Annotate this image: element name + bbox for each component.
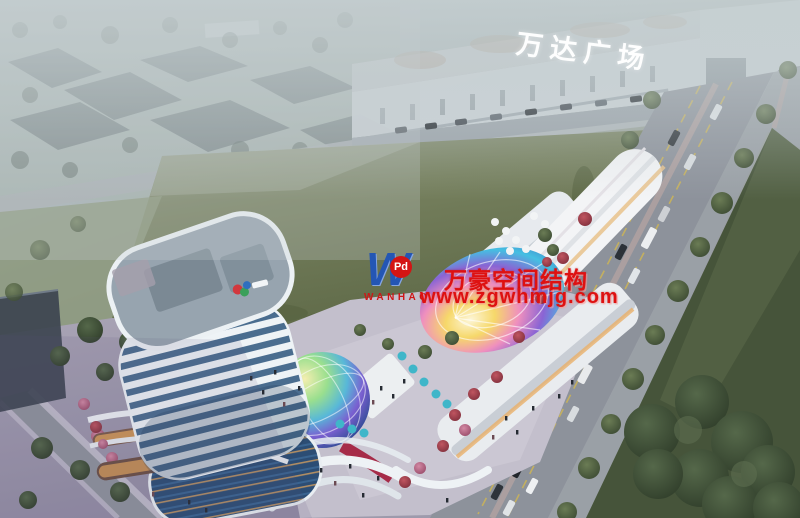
watermark-logo-badge: Pd xyxy=(390,256,412,278)
watermark-url: www.zgwhmjg.com xyxy=(420,286,619,309)
aerial-rendering-scene: 万达广场 W Pd WANHAO 万豪空间结构 www.zgwhmjg.com xyxy=(0,0,800,518)
